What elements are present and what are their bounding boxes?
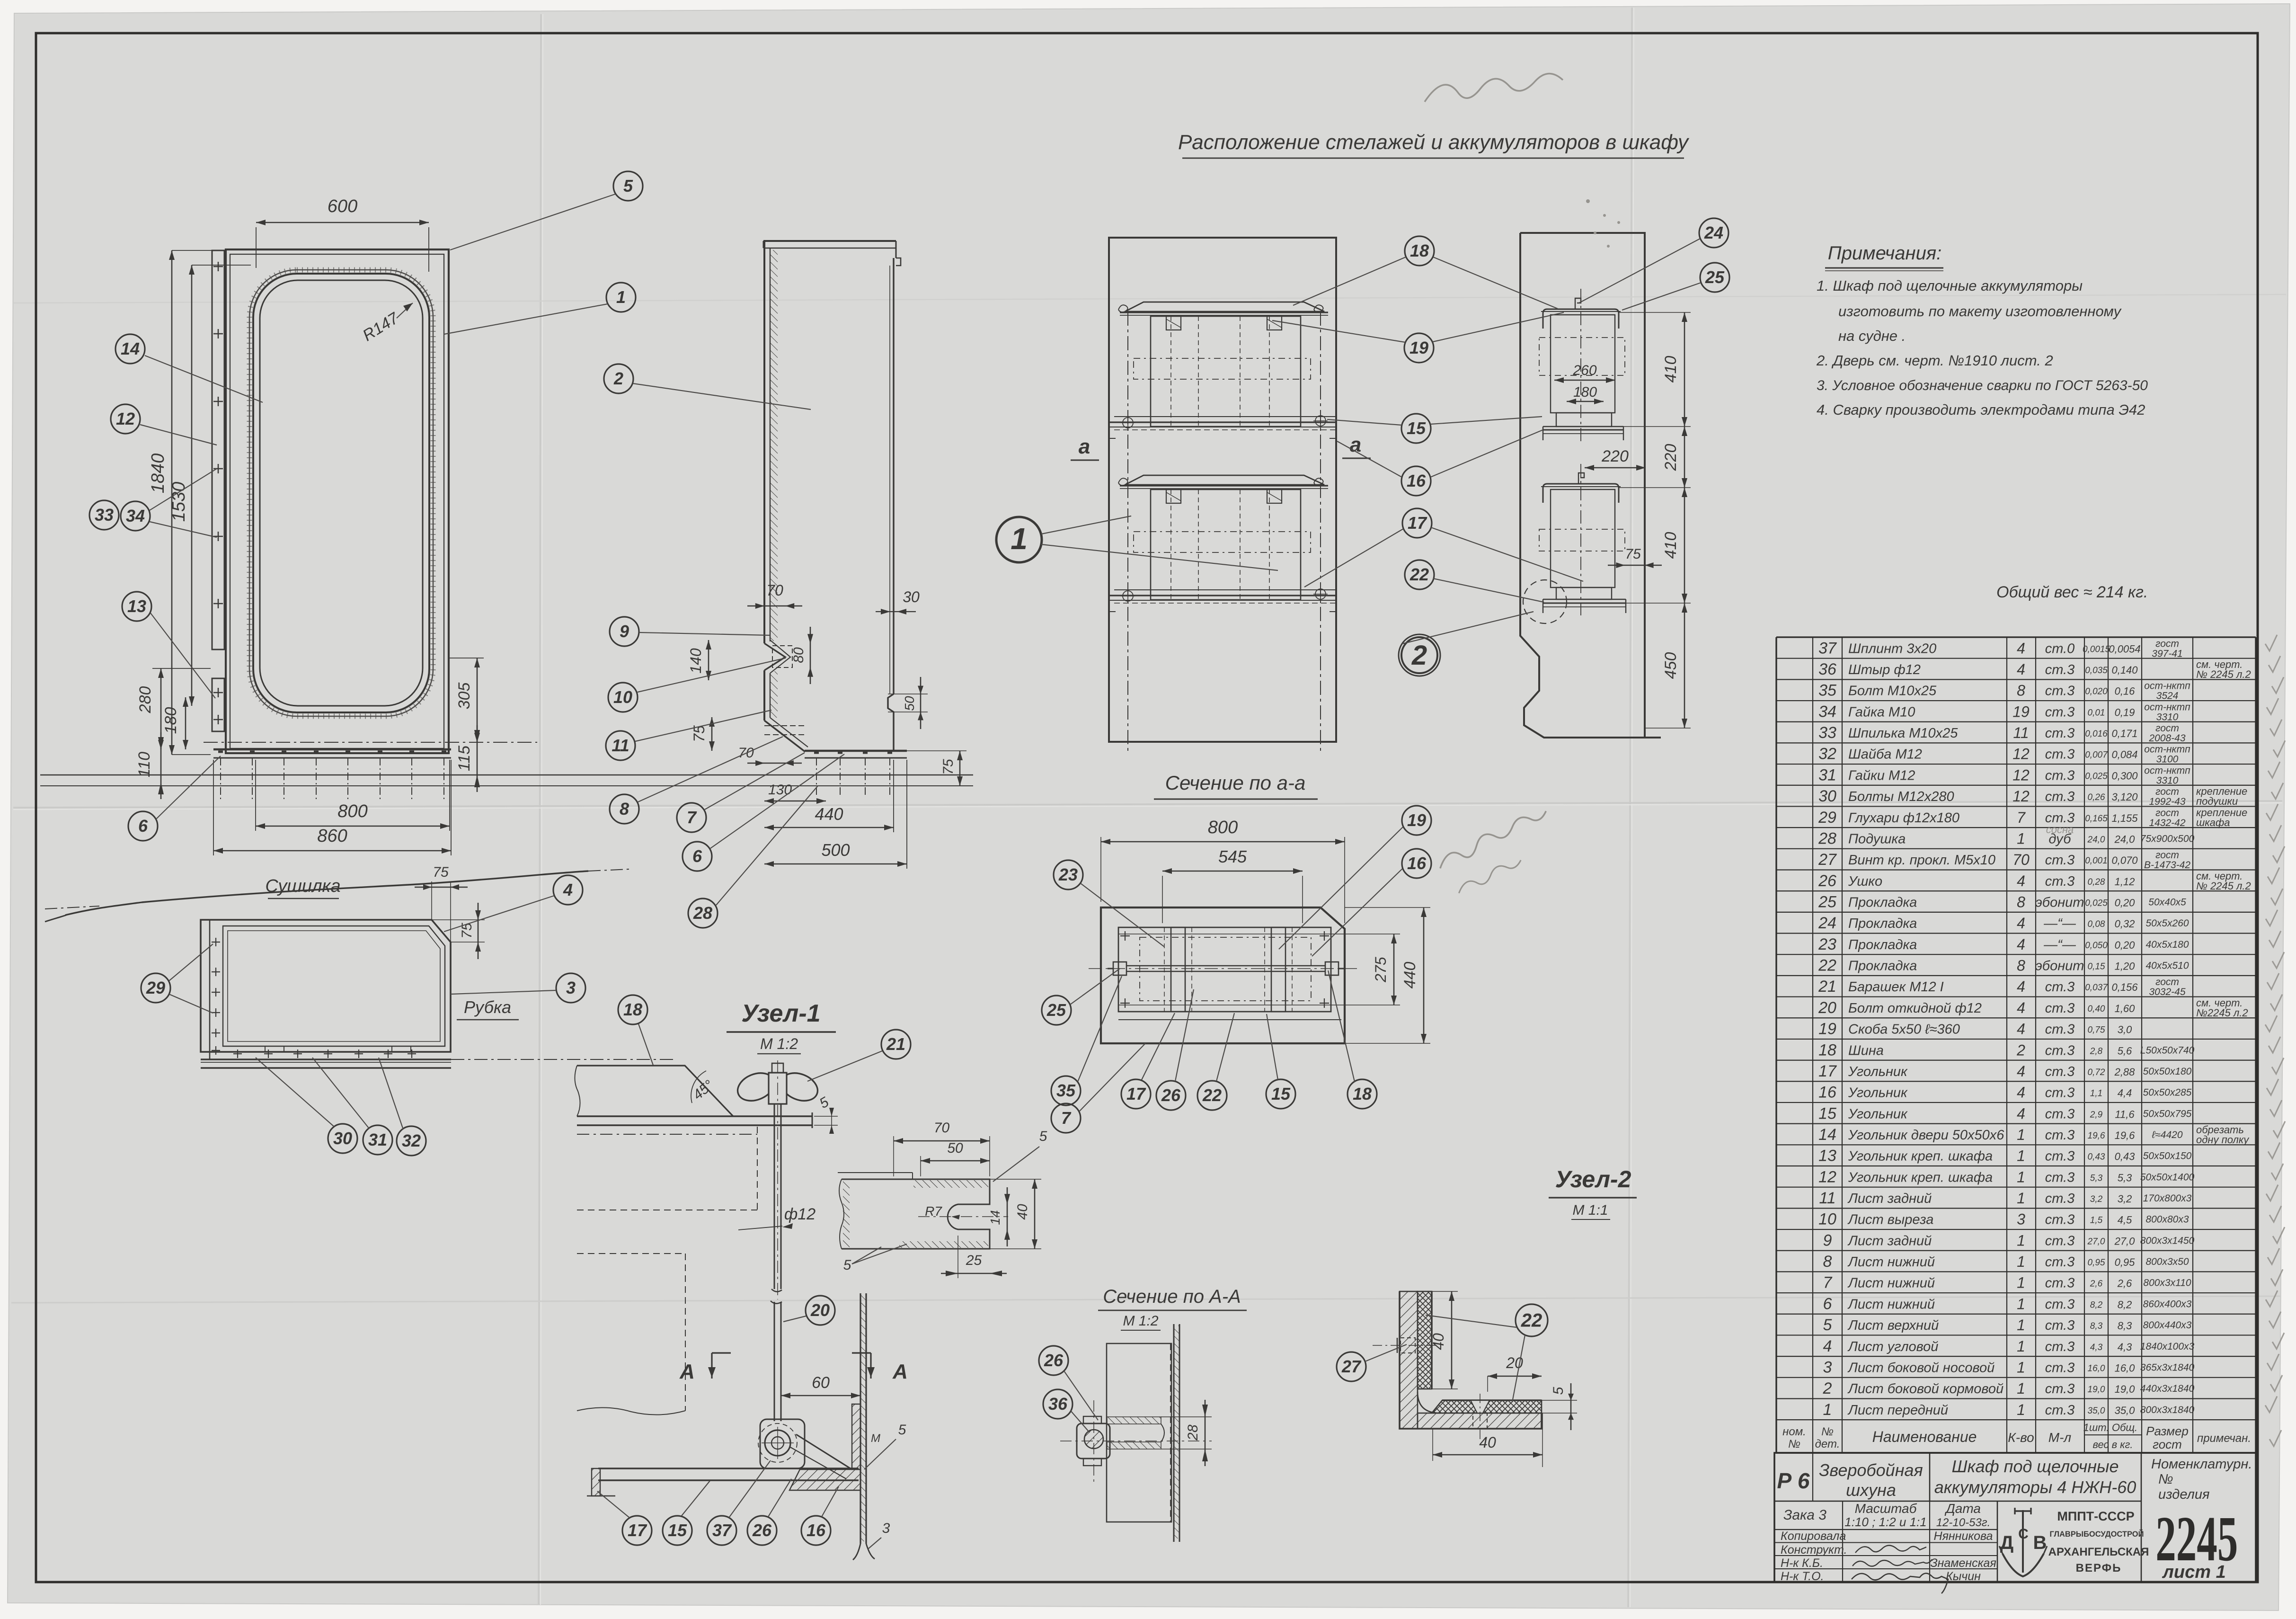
svg-text:440: 440 — [1401, 962, 1419, 989]
svg-text:0,140: 0,140 — [2111, 664, 2138, 676]
svg-text:34: 34 — [126, 506, 145, 525]
svg-text:1,12: 1,12 — [2115, 876, 2135, 888]
svg-text:4: 4 — [2017, 999, 2025, 1016]
svg-text:0,20: 0,20 — [2115, 939, 2136, 951]
svg-text:0,72: 0,72 — [2088, 1067, 2105, 1077]
svg-text:L50x50x740: L50x50x740 — [2140, 1045, 2195, 1056]
svg-text:2008-43: 2008-43 — [2148, 733, 2185, 744]
svg-text:28: 28 — [1185, 1424, 1201, 1441]
svg-text:4: 4 — [2017, 661, 2025, 678]
svg-text:1,155: 1,155 — [2111, 812, 2138, 824]
svg-text:50x50x1400: 50x50x1400 — [2140, 1172, 2195, 1183]
svg-text:Н-к Т.О.: Н-к Т.О. — [1781, 1570, 1824, 1583]
svg-text:1: 1 — [2017, 1126, 2025, 1143]
svg-text:ст.3: ст.3 — [2045, 1128, 2075, 1143]
svg-text:Сечение по а-а: Сечение по а-а — [1165, 772, 1306, 794]
svg-text:3: 3 — [2017, 1211, 2025, 1228]
svg-text:ст.3: ст.3 — [2045, 768, 2075, 783]
svg-text:33: 33 — [95, 505, 114, 525]
svg-text:7: 7 — [2017, 809, 2026, 826]
svg-text:2: 2 — [1411, 640, 1427, 671]
svg-text:7: 7 — [1823, 1274, 1833, 1292]
svg-text:3,2: 3,2 — [2118, 1193, 2132, 1205]
svg-text:Конструкт.: Конструкт. — [1781, 1543, 1847, 1557]
svg-text:ост-нктп: ост-нктп — [2144, 765, 2190, 776]
svg-text:Лист боковой кормовой: Лист боковой кормовой — [1847, 1381, 2003, 1397]
svg-text:Общий вес ≈ 214 кг.: Общий вес ≈ 214 кг. — [1996, 583, 2148, 601]
svg-text:8: 8 — [620, 799, 629, 818]
svg-text:0,300: 0,300 — [2111, 770, 2138, 782]
svg-text:0,007: 0,007 — [2085, 750, 2108, 760]
svg-text:110: 110 — [135, 752, 153, 777]
svg-text:0,070: 0,070 — [2111, 854, 2138, 866]
svg-text:а: а — [1079, 435, 1090, 458]
svg-text:12-10-53г.: 12-10-53г. — [1936, 1516, 1991, 1529]
svg-text:А: А — [679, 1360, 695, 1383]
svg-text:0,037: 0,037 — [2085, 983, 2108, 993]
svg-text:11: 11 — [612, 736, 629, 755]
svg-text:5,3: 5,3 — [2118, 1172, 2132, 1183]
svg-text:ст.3: ст.3 — [2045, 1233, 2075, 1248]
svg-text:Прокладка: Прокладка — [1848, 959, 1917, 974]
svg-text:Размер: Размер — [2146, 1424, 2189, 1438]
svg-text:Лист угловой: Лист угловой — [1847, 1339, 1938, 1354]
svg-text:800x3x1450: 800x3x1450 — [2140, 1235, 2195, 1246]
svg-text:Угольник: Угольник — [1848, 1085, 1908, 1101]
svg-text:6: 6 — [138, 816, 148, 836]
svg-text:0,15: 0,15 — [2088, 962, 2105, 972]
svg-text:5,3: 5,3 — [2090, 1173, 2103, 1183]
svg-text:17: 17 — [1408, 513, 1427, 533]
svg-text:4: 4 — [2017, 640, 2025, 657]
svg-text:0,001: 0,001 — [2085, 856, 2108, 866]
svg-text:28: 28 — [693, 903, 712, 923]
svg-text:Прокладка: Прокладка — [1848, 916, 1917, 931]
svg-text:35,0: 35,0 — [2115, 1405, 2136, 1416]
svg-text:18: 18 — [623, 1000, 642, 1019]
svg-text:Лист нижний: Лист нижний — [1847, 1254, 1935, 1270]
svg-text:130: 130 — [768, 782, 792, 798]
svg-text:0,020: 0,020 — [2085, 687, 2108, 697]
svg-text:1: 1 — [2017, 1274, 2025, 1291]
svg-text:2. Дверь см. черт. №1910 л: 2. Дверь см. черт. №1910 лист. 2 — [1816, 352, 2053, 369]
svg-text:ст.3: ст.3 — [2045, 1381, 2075, 1397]
svg-text:8,3: 8,3 — [2090, 1321, 2103, 1331]
svg-text:1: 1 — [2017, 1295, 2025, 1312]
svg-text:Лист выреза: Лист выреза — [1847, 1212, 1933, 1228]
svg-text:ост-нктп: ост-нктп — [2144, 681, 2190, 692]
svg-text:Прокладка: Прокладка — [1848, 895, 1917, 910]
svg-text:4: 4 — [2017, 1063, 2025, 1080]
svg-text:19,0: 19,0 — [2088, 1385, 2105, 1395]
svg-text:170x800x3: 170x800x3 — [2143, 1193, 2192, 1204]
svg-text:ст.3: ст.3 — [2045, 979, 2075, 995]
svg-text:1: 1 — [2017, 1338, 2025, 1355]
svg-text:—“—: —“— — [2043, 937, 2076, 952]
svg-text:ст.3: ст.3 — [2045, 1170, 2075, 1185]
svg-text:27: 27 — [1341, 1357, 1362, 1376]
svg-text:410: 410 — [1662, 356, 1680, 383]
svg-text:Винт кр. прокл. М5x10: Винт кр. прокл. М5x10 — [1848, 853, 1995, 868]
svg-text:36: 36 — [1048, 1394, 1068, 1414]
svg-text:860: 860 — [317, 826, 347, 846]
svg-text:Зверобойная: Зверобойная — [1819, 1460, 1923, 1480]
svg-text:410: 410 — [1662, 532, 1680, 559]
svg-text:3310: 3310 — [2156, 712, 2179, 722]
svg-text:Дата: Дата — [1944, 1501, 1981, 1516]
svg-text:19: 19 — [1407, 810, 1426, 830]
svg-text:19,6: 19,6 — [2088, 1131, 2105, 1141]
svg-text:800: 800 — [337, 801, 367, 821]
svg-text:365x3x1840: 365x3x1840 — [2140, 1362, 2195, 1373]
svg-text:лист 1: лист 1 — [2162, 1562, 2225, 1582]
svg-text:4: 4 — [2017, 936, 2025, 953]
svg-text:ст.3: ст.3 — [2045, 810, 2075, 826]
svg-text:9: 9 — [1823, 1231, 1832, 1249]
svg-text:24,0: 24,0 — [2087, 835, 2105, 845]
svg-text:ст.3: ст.3 — [2045, 1085, 2075, 1101]
svg-text:31: 31 — [1818, 766, 1836, 784]
svg-text:4. Сварку производить элект: 4. Сварку производить электродами типа Э… — [1817, 401, 2145, 418]
svg-text:275: 275 — [1372, 957, 1389, 983]
svg-text:Сушилка: Сушилка — [265, 876, 340, 896]
svg-text:37: 37 — [1818, 639, 1837, 657]
svg-text:70: 70 — [934, 1120, 950, 1136]
svg-text:№2245 л.2: №2245 л.2 — [2196, 1007, 2248, 1019]
svg-text:50x40x5: 50x40x5 — [2148, 897, 2186, 908]
svg-text:220: 220 — [1662, 444, 1680, 471]
svg-text:1: 1 — [2017, 1148, 2025, 1165]
svg-text:гост: гост — [2155, 723, 2179, 734]
svg-text:1840x100x3: 1840x100x3 — [2140, 1341, 2195, 1352]
svg-text:гост: гост — [2155, 808, 2179, 818]
svg-text:9: 9 — [620, 622, 629, 641]
svg-text:эбонит: эбонит — [2036, 959, 2084, 974]
svg-text:10: 10 — [613, 687, 632, 707]
svg-text:ст.3: ст.3 — [2045, 1149, 2075, 1164]
svg-text:5: 5 — [1551, 1387, 1566, 1395]
svg-text:280: 280 — [136, 686, 154, 714]
svg-text:0,19: 0,19 — [2115, 706, 2135, 718]
svg-text:50x5x260: 50x5x260 — [2145, 918, 2189, 929]
svg-text:23: 23 — [1818, 935, 1836, 953]
svg-text:800x80x3: 800x80x3 — [2145, 1214, 2189, 1225]
svg-text:2,6: 2,6 — [2090, 1279, 2103, 1289]
svg-text:М 1:2: М 1:2 — [1123, 1313, 1158, 1329]
svg-text:№: № — [1821, 1425, 1834, 1438]
svg-text:2,8: 2,8 — [2090, 1046, 2103, 1056]
svg-text:19: 19 — [2012, 703, 2030, 720]
svg-text:1432-42: 1432-42 — [2149, 818, 2185, 828]
svg-text:35: 35 — [1818, 682, 1836, 700]
svg-text:Угольник: Угольник — [1848, 1106, 1908, 1121]
svg-text:сосна: сосна — [2046, 824, 2074, 836]
svg-text:21: 21 — [1818, 978, 1836, 996]
svg-text:18: 18 — [1410, 241, 1429, 260]
svg-text:Знаменская: Знаменская — [1930, 1557, 1996, 1570]
svg-text:6: 6 — [692, 846, 702, 866]
svg-text:1: 1 — [1823, 1401, 1832, 1419]
svg-text:ст.3: ст.3 — [2045, 704, 2075, 720]
svg-text:16: 16 — [1407, 854, 1427, 873]
svg-text:4,3: 4,3 — [2118, 1341, 2132, 1353]
svg-text:21: 21 — [886, 1034, 905, 1054]
svg-text:16: 16 — [807, 1521, 826, 1540]
svg-text:24,0: 24,0 — [2114, 833, 2136, 845]
svg-text:0,95: 0,95 — [2115, 1256, 2136, 1268]
svg-text:0,20: 0,20 — [2115, 897, 2136, 909]
svg-text:800x3x110: 800x3x110 — [2143, 1278, 2191, 1289]
svg-text:Номенклатурн.: Номенклатурн. — [2151, 1457, 2252, 1472]
svg-text:1: 1 — [2017, 1232, 2025, 1249]
svg-text:ст.3: ст.3 — [2045, 789, 2075, 804]
svg-text:Наименование: Наименование — [1872, 1428, 1977, 1445]
svg-text:Шина: Шина — [1848, 1043, 1884, 1058]
svg-text:1: 1 — [2017, 1317, 2025, 1334]
svg-text:26: 26 — [1044, 1351, 1064, 1370]
svg-text:4: 4 — [2017, 1021, 2025, 1038]
svg-text:5: 5 — [623, 176, 633, 196]
svg-text:Ушко: Ушко — [1848, 874, 1882, 889]
svg-text:Шайба М12: Шайба М12 — [1848, 747, 1922, 762]
svg-text:на судне .: на судне . — [1838, 328, 1906, 344]
svg-text:ст.3: ст.3 — [2045, 1403, 2075, 1418]
svg-text:2,9: 2,9 — [2090, 1110, 2103, 1120]
svg-text:Лист нижний: Лист нижний — [1847, 1276, 1935, 1291]
svg-text:Р 6: Р 6 — [1777, 1468, 1809, 1493]
svg-text:гост: гост — [2153, 1437, 2182, 1451]
svg-text:800x3x50: 800x3x50 — [2145, 1256, 2189, 1267]
svg-text:АРХАНГЕЛЬСКАЯ: АРХАНГЕЛЬСКАЯ — [2048, 1546, 2149, 1558]
svg-text:Угольник: Угольник — [1848, 1064, 1908, 1079]
svg-text:3524: 3524 — [2156, 691, 2179, 702]
svg-text:30: 30 — [903, 588, 920, 605]
svg-text:8,2: 8,2 — [2090, 1300, 2103, 1310]
svg-text:23: 23 — [1058, 865, 1078, 884]
svg-text:ст.3: ст.3 — [2045, 1297, 2075, 1312]
svg-text:1: 1 — [2017, 830, 2025, 847]
svg-text:1. Шкаф под щелочные аккуму: 1. Шкаф под щелочные аккумуляторы — [1817, 277, 2083, 294]
svg-text:3: 3 — [1823, 1358, 1832, 1376]
svg-text:15: 15 — [1271, 1084, 1291, 1103]
svg-text:26: 26 — [1161, 1085, 1181, 1105]
svg-text:Скоба 5x50 ℓ≈360: Скоба 5x50 ℓ≈360 — [1848, 1022, 1960, 1037]
svg-text:примечан.: примечан. — [2197, 1432, 2251, 1445]
svg-text:М: М — [871, 1432, 880, 1445]
svg-text:2,6: 2,6 — [2117, 1278, 2132, 1290]
svg-text:10: 10 — [1818, 1210, 1836, 1228]
svg-text:ст.3: ст.3 — [2045, 684, 2075, 699]
svg-text:18: 18 — [1353, 1084, 1372, 1103]
svg-text:11: 11 — [1819, 1189, 1835, 1207]
svg-text:0,025: 0,025 — [2085, 771, 2108, 781]
svg-text:ℓ≈4420: ℓ≈4420 — [2151, 1130, 2182, 1140]
svg-text:Угольник креп. шкафа: Угольник креп. шкафа — [1848, 1170, 1993, 1185]
svg-text:5: 5 — [843, 1257, 851, 1273]
svg-text:1,60: 1,60 — [2115, 1003, 2136, 1014]
svg-text:19,6: 19,6 — [2115, 1130, 2136, 1141]
svg-text:8: 8 — [2017, 957, 2025, 974]
svg-text:ВЕРФЬ: ВЕРФЬ — [2076, 1562, 2122, 1575]
svg-text:16: 16 — [1818, 1084, 1836, 1102]
svg-text:ст.0: ст.0 — [2045, 641, 2075, 656]
svg-text:1: 1 — [2017, 1380, 2025, 1397]
svg-text:40x5x180: 40x5x180 — [2145, 939, 2189, 950]
svg-text:3,0: 3,0 — [2118, 1024, 2132, 1036]
svg-text:ст.3: ст.3 — [2045, 1064, 2075, 1079]
svg-text:№: № — [2158, 1472, 2173, 1487]
svg-text:1840: 1840 — [148, 454, 168, 494]
svg-text:600: 600 — [328, 196, 357, 216]
svg-text:40: 40 — [1015, 1204, 1030, 1220]
svg-text:ст.3: ст.3 — [2045, 1318, 2075, 1333]
svg-text:180: 180 — [1573, 384, 1597, 400]
svg-text:0,171: 0,171 — [2111, 728, 2137, 739]
svg-text:ст.3: ст.3 — [2045, 1212, 2075, 1228]
svg-text:5: 5 — [1039, 1129, 1047, 1144]
svg-text:28: 28 — [1818, 829, 1836, 847]
svg-text:31: 31 — [368, 1130, 387, 1149]
svg-text:7: 7 — [1061, 1108, 1072, 1128]
svg-text:Угольник креп. шкафа: Угольник креп. шкафа — [1848, 1149, 1993, 1164]
svg-text:гост: гост — [2155, 638, 2179, 649]
svg-text:1: 1 — [2017, 1253, 2025, 1270]
svg-text:5: 5 — [898, 1422, 906, 1438]
svg-text:4: 4 — [2017, 978, 2025, 995]
svg-text:эбонит: эбонит — [2036, 895, 2084, 910]
svg-text:1: 1 — [2017, 1359, 2025, 1376]
svg-text:5,6: 5,6 — [2118, 1045, 2132, 1057]
svg-text:25: 25 — [1705, 267, 1725, 287]
svg-text:шкафа: шкафа — [2196, 817, 2230, 828]
svg-text:М 1:1: М 1:1 — [1572, 1202, 1608, 1218]
svg-text:12: 12 — [2012, 766, 2030, 783]
svg-text:70: 70 — [766, 582, 783, 599]
svg-text:30: 30 — [1818, 787, 1836, 805]
svg-text:70: 70 — [2012, 851, 2030, 868]
svg-text:4: 4 — [2017, 1084, 2025, 1101]
svg-text:дет.: дет. — [1815, 1438, 1840, 1450]
svg-text:Штыр ф12: Штыр ф12 — [1848, 662, 1921, 677]
svg-text:подушки: подушки — [2196, 795, 2238, 807]
svg-text:Шпилька М10x25: Шпилька М10x25 — [1848, 726, 1958, 741]
svg-text:0,08: 0,08 — [2088, 919, 2105, 929]
svg-text:15: 15 — [1818, 1104, 1836, 1122]
svg-text:изделия: изделия — [2158, 1487, 2209, 1502]
svg-text:3310: 3310 — [2156, 775, 2179, 786]
svg-text:0,43: 0,43 — [2115, 1151, 2136, 1163]
svg-text:18: 18 — [1818, 1041, 1836, 1059]
svg-text:0,165: 0,165 — [2085, 814, 2108, 824]
svg-text:Болты М12x280: Болты М12x280 — [1848, 789, 1954, 804]
svg-text:37: 37 — [712, 1521, 732, 1540]
svg-text:22: 22 — [1202, 1085, 1222, 1105]
svg-text:40: 40 — [1479, 1434, 1496, 1451]
svg-text:Масштаб: Масштаб — [1855, 1501, 1917, 1516]
svg-text:Болт откидной ф12: Болт откидной ф12 — [1848, 1001, 1982, 1016]
svg-text:25: 25 — [966, 1253, 982, 1268]
svg-text:115: 115 — [455, 746, 473, 771]
svg-text:2,88: 2,88 — [2114, 1066, 2136, 1078]
svg-text:25: 25 — [1818, 893, 1836, 911]
svg-text:Нянникова: Нянникова — [1934, 1530, 1993, 1543]
svg-text:4,3: 4,3 — [2090, 1343, 2103, 1352]
svg-text:ст.3: ст.3 — [2045, 1339, 2075, 1354]
svg-text:0,75: 0,75 — [2088, 1025, 2105, 1035]
svg-text:Примечания:: Примечания: — [1828, 243, 1942, 264]
svg-text:3: 3 — [566, 978, 576, 997]
svg-text:ст.3: ст.3 — [2045, 874, 2075, 889]
svg-text:Расположение стелажей и аккуму: Расположение стелажей и аккумуляторов в … — [1178, 131, 1690, 154]
svg-text:12: 12 — [2012, 788, 2030, 805]
svg-text:Гайки М12: Гайки М12 — [1848, 768, 1915, 783]
svg-text:ст.3: ст.3 — [2045, 747, 2075, 762]
svg-text:8: 8 — [2017, 894, 2025, 911]
svg-text:75x900x500: 75x900x500 — [2140, 833, 2195, 844]
svg-text:27,0: 27,0 — [2114, 1235, 2136, 1247]
svg-text:180: 180 — [162, 707, 180, 734]
svg-text:Угольник двери 50x50x6: Угольник двери 50x50x6 — [1848, 1128, 2004, 1143]
svg-text:Рубка: Рубка — [464, 997, 511, 1017]
svg-text:Подушка: Подушка — [1848, 831, 1906, 846]
svg-text:140: 140 — [687, 648, 704, 674]
svg-text:1шт.: 1шт. — [2083, 1422, 2110, 1433]
svg-text:Д: Д — [2000, 1532, 2014, 1553]
svg-text:—“—: —“— — [2043, 916, 2076, 931]
svg-text:260: 260 — [1572, 363, 1596, 378]
svg-text:50: 50 — [902, 696, 917, 711]
svg-text:17: 17 — [1818, 1062, 1837, 1080]
svg-text:М-л: М-л — [2048, 1430, 2072, 1445]
svg-text:500: 500 — [821, 840, 850, 860]
svg-text:32: 32 — [1818, 745, 1836, 763]
svg-text:ст.3: ст.3 — [2045, 1191, 2075, 1206]
svg-text:Общ.: Общ. — [2112, 1422, 2137, 1433]
svg-text:19: 19 — [1818, 1020, 1836, 1038]
svg-text:25: 25 — [1046, 1000, 1066, 1020]
svg-text:440x3x1840: 440x3x1840 — [2140, 1383, 2195, 1394]
svg-text:Лист задний: Лист задний — [1847, 1233, 1932, 1248]
svg-text:545: 545 — [1218, 847, 1247, 866]
svg-text:0,035: 0,035 — [2085, 666, 2108, 676]
svg-text:ст.3: ст.3 — [2045, 726, 2075, 741]
svg-text:К-во: К-во — [2008, 1430, 2034, 1445]
svg-text:ст.3: ст.3 — [2045, 1254, 2075, 1270]
svg-text:8,3: 8,3 — [2118, 1320, 2132, 1332]
svg-text:15: 15 — [668, 1521, 687, 1540]
svg-text:№ 2245 л.2: № 2245 л.2 — [2196, 880, 2251, 892]
svg-text:3100: 3100 — [2156, 754, 2179, 765]
svg-text:8,2: 8,2 — [2118, 1299, 2132, 1310]
svg-text:Гайка М10: Гайка М10 — [1848, 704, 1915, 720]
svg-text:36: 36 — [1818, 660, 1836, 678]
svg-text:8: 8 — [2017, 682, 2025, 699]
svg-text:Сечение по А-А: Сечение по А-А — [1103, 1286, 1241, 1307]
svg-text:12: 12 — [1818, 1168, 1836, 1186]
svg-text:Прокладка: Прокладка — [1848, 937, 1917, 952]
svg-text:50x50x285: 50x50x285 — [2143, 1087, 2192, 1098]
svg-text:3. Условное обозначение сва: 3. Условное обозначение сварки по ГОСТ 5… — [1817, 378, 2148, 393]
svg-text:0,40: 0,40 — [2088, 1004, 2105, 1014]
svg-text:0,156: 0,156 — [2111, 981, 2138, 993]
svg-text:13: 13 — [1818, 1147, 1836, 1165]
svg-text:450: 450 — [1662, 652, 1680, 679]
svg-text:ст.3: ст.3 — [2045, 1276, 2075, 1291]
svg-text:Шплинт 3x20: Шплинт 3x20 — [1848, 641, 1936, 656]
svg-text:20: 20 — [1818, 999, 1836, 1017]
svg-text:ст.3: ст.3 — [2045, 1001, 2075, 1016]
svg-text:А: А — [892, 1360, 908, 1383]
